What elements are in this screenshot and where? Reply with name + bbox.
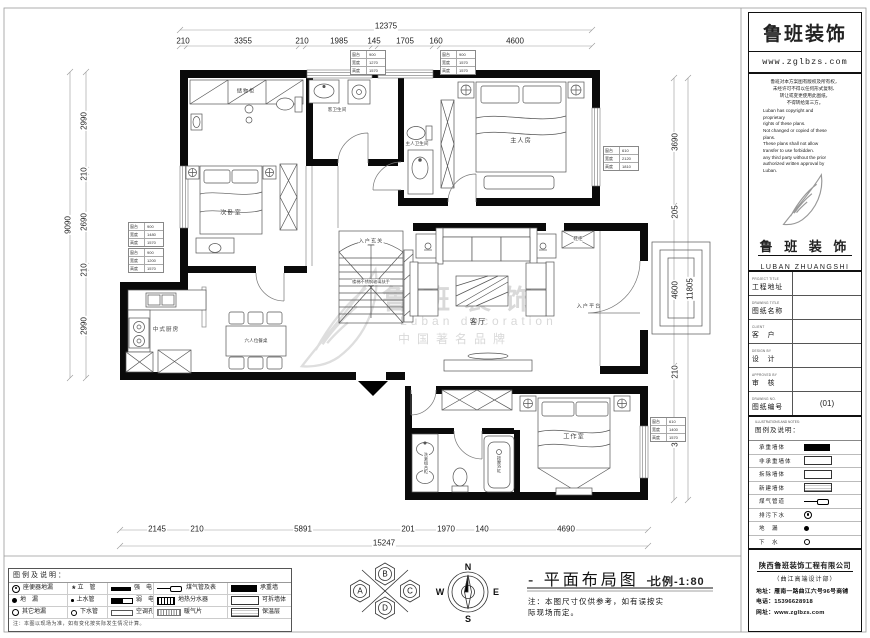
field-value: [793, 320, 861, 343]
field-client: CLIENT客 户: [749, 320, 861, 344]
copyright-en-line: These plans shall not allow: [763, 141, 861, 148]
dim-right-1: 205: [671, 204, 680, 219]
dim-right-3: 210: [671, 364, 680, 379]
copyright-en-line: Not changed or copied of these: [763, 128, 861, 135]
downpipe-icon: [804, 539, 810, 545]
compass-n-label: N: [465, 562, 472, 572]
room-label-guest-bath: 客卫生间: [328, 107, 346, 113]
logo-en: LUBAN ZHUANGSHI: [760, 264, 849, 271]
floor-drain-icon: [804, 526, 809, 531]
dim-bottom-2: 5891: [293, 525, 313, 534]
company-address: 地址：雁南一路曲江六号96号商铺: [756, 587, 861, 597]
window-table-2: 窗台900 宽度1570 高度1570: [440, 50, 476, 75]
room-label-living: 客厅: [470, 317, 486, 327]
gas-pipe-meter-icon: [157, 586, 183, 592]
room-label-foyer: 入户玄关: [359, 238, 384, 245]
panel-legend-row: 地 漏: [749, 522, 861, 536]
field-value: [793, 272, 861, 295]
dim-top-0: 210: [175, 37, 190, 46]
panel-legend-title: ILLUSTRATIONS AND NOTES: 图例及说明：: [749, 417, 861, 441]
room-label-master-bedroom: 主人房: [510, 136, 532, 145]
legend-header: 图例及说明：: [9, 569, 291, 583]
copyright-cn-line: 未经许可不得以任何形式复制、: [749, 85, 861, 92]
copyright-cn-line: 不得转给第三方。: [749, 99, 861, 106]
demolish-wall-icon: [804, 470, 832, 479]
legend-panel: 图例及说明： 座便器地漏 *立 管 强 电 煤气管及表 承重墙 地 漏 上水管 …: [8, 568, 292, 632]
field-approved-by: APPROVED BY审 核: [749, 368, 861, 392]
sewage-drain-icon: [804, 511, 812, 519]
copyright-cn-line: 鲁班对本方案图有版权及所有权，: [749, 78, 861, 85]
dim-top-3: 1985: [329, 37, 349, 46]
legend-label: 承重墙: [260, 583, 278, 594]
dim-bottom-5: 140: [474, 525, 489, 534]
field-project-title: PROJECT TITLE工程地址: [749, 272, 861, 296]
dim-top-7: 4600: [505, 37, 525, 46]
riser-pipe-icon: *: [72, 587, 76, 591]
legend-label: 强 电: [134, 583, 152, 594]
dim-bottom-6: 4690: [556, 525, 576, 534]
dim-right-2: 4600: [671, 280, 680, 300]
water-supply-icon: [71, 599, 74, 602]
legend-label: 暖气片: [184, 607, 202, 618]
logo-cn: 鲁 班 装 饰: [758, 236, 853, 256]
dim-top-4: 145: [366, 37, 381, 46]
room-label-shoe-cabinet: 鞋柜: [573, 236, 582, 242]
panel-legend-row: 拆除墙体: [749, 468, 861, 482]
legend-row: 地 漏 上水管 弱 电 地热分水器 可拆墙体: [9, 595, 291, 607]
copyright-en-line: any third party without the prior: [763, 155, 861, 162]
logo-wordmark: 鲁 班 装 饰 LUBAN ZHUANGSHI: [749, 236, 861, 272]
legend-label: 地 漏: [20, 595, 38, 606]
field-value: [793, 368, 861, 391]
rosette-b-label: B: [382, 570, 387, 579]
title-block-fields: PROJECT TITLE工程地址 DRAWING TITLE图纸名称 CLIE…: [749, 272, 861, 417]
new-wall-icon: [804, 483, 832, 492]
window-table-1: 窗台900 宽度1270 高度1570: [350, 50, 386, 75]
bearing-wall-icon: [804, 444, 830, 451]
insulation-icon: [231, 608, 259, 617]
copyright-en-line: rights of these plans.: [763, 121, 861, 128]
field-drawing-title: DRAWING TITLE图纸名称: [749, 296, 861, 320]
copyright-cn: 鲁班对本方案图有版权及所有权， 未经许可不得以任何形式复制、 转让或变更使用此图…: [749, 74, 861, 108]
panel-legend: ILLUSTRATIONS AND NOTES: 图例及说明： 承重墙体 非承重…: [749, 417, 861, 550]
bearing-wall-icon: [231, 585, 257, 592]
compass-icon: N S E W: [436, 562, 499, 624]
floor-drain-icon: [12, 598, 17, 603]
compass-w-label: W: [436, 587, 445, 597]
field-value: [793, 344, 861, 367]
ac-hole-icon: [111, 610, 133, 616]
dim-top-total: 12375: [374, 22, 398, 31]
plan-drawing: B A C D N S E W: [0, 0, 870, 638]
field-cn: 图纸名称: [752, 305, 792, 315]
drain-pipe-icon: [71, 610, 77, 616]
compass-s-label: S: [465, 614, 471, 624]
room-label-dining: 六人位餐桌: [245, 338, 268, 344]
dim-top-6: 160: [428, 37, 443, 46]
note-line-2: 际现场而定。: [528, 607, 579, 618]
field-cn: 审 核: [752, 377, 792, 387]
window-table-3: 窗台610 宽度2120 高度1810: [603, 146, 639, 171]
dim-top-5: 1705: [395, 37, 415, 46]
legend-label: 立 管: [78, 583, 96, 594]
room-label-kitchen: 中式厨房: [153, 325, 179, 333]
dim-left-4: 2990: [80, 316, 89, 336]
legend-label: 煤气管及表: [186, 583, 216, 594]
manifold-icon: [157, 597, 175, 605]
field-cn: 客 户: [752, 329, 792, 339]
company-phone: 电话：15396628918: [756, 597, 861, 607]
dim-bottom-3: 201: [400, 525, 415, 534]
legend-label: 座便器地漏: [23, 583, 53, 594]
room-label-studio: 工作室: [563, 432, 585, 441]
legend-label: 可拆墙体: [262, 595, 286, 606]
rosette-d-label: D: [382, 604, 388, 613]
legend-label: 下水管: [80, 607, 98, 618]
brand-website: www.zglbzs.com: [749, 52, 861, 74]
copyright-en-line: authorized written approval by: [763, 161, 861, 168]
dim-right-0: 3690: [671, 132, 680, 152]
dim-right-total: 11805: [686, 277, 695, 301]
weak-power-icon: [111, 598, 133, 604]
radiator-icon: [157, 609, 181, 616]
copyright-en-line: Luban has copyright and: [763, 108, 861, 115]
strong-power-icon: [111, 587, 131, 591]
note-line-1: 注：本图尺寸仅供参考，如有误按实: [528, 596, 664, 607]
scale-label: 比例-1:80: [650, 573, 705, 589]
legend-note: 注：本图以现场为准，如有变化按实际发生情况计算。: [9, 619, 291, 627]
room-label-storage: 储物柜: [237, 88, 256, 95]
field-cn: 工程地址: [752, 281, 792, 291]
legend-label: 其它地漏: [22, 607, 46, 618]
field-cn: 图纸编号: [752, 401, 792, 411]
field-design-by: DESIGN BY设 计: [749, 344, 861, 368]
floorplan-sheet: { "sheet": { "drawing_title": "- 平面布局图 -…: [0, 0, 870, 638]
copyright-cn-line: 转让或变更使用此图纸，: [749, 92, 861, 99]
panel-legend-row: 排污下水: [749, 509, 861, 523]
dim-left-total: 9090: [64, 215, 73, 235]
leaf-logo-icon: [749, 170, 861, 236]
copyright-en: Luban has copyright and proprietary righ…: [749, 108, 861, 170]
company-website: 网址：www.zglbzs.com: [756, 608, 861, 618]
legend-row: 座便器地漏 *立 管 强 电 煤气管及表 承重墙: [9, 583, 291, 595]
dim-top-1: 3355: [233, 37, 253, 46]
removable-wall-icon: [231, 596, 259, 605]
room-label-master-bath: 主人卫生间: [406, 141, 429, 147]
direction-rosette: B A C D: [351, 563, 420, 619]
room-label-bathtub: 按摩浴缸: [496, 456, 502, 473]
legend-label: 保温层: [262, 607, 280, 618]
panel-legend-row: 承重墙体: [749, 441, 861, 455]
field-cn: 设 计: [752, 353, 792, 363]
panel-legend-title-cn: 图例及说明：: [755, 424, 861, 434]
panel-legend-row: 非承重墙体: [749, 455, 861, 469]
dim-bottom-total: 15247: [372, 539, 396, 548]
dim-left-0: 2990: [80, 111, 89, 131]
field-value: [793, 296, 861, 319]
other-drain-icon: [12, 609, 19, 616]
copyright-en-line: proprietary: [763, 115, 861, 122]
brand-title: 鲁班装饰: [749, 13, 861, 52]
panel-legend-row: 煤气管道: [749, 495, 861, 509]
copyright-en-line: plans.: [763, 135, 861, 142]
rosette-c-label: C: [407, 587, 413, 596]
copyright-en-line: transfer to use forbidden.: [763, 148, 861, 155]
field-drawing-no: DRAWING NO.图纸编号 (01): [749, 392, 861, 415]
dim-bottom-0: 2145: [147, 525, 167, 534]
legend-label: 弱 电: [136, 595, 153, 606]
company-block: 陕西鲁班装饰工程有限公司 （曲江高端设计部） 地址：雁南一路曲江六号96号商铺 …: [749, 550, 861, 631]
panel-legend-row: 下 水: [749, 536, 861, 549]
compass-e-label: E: [493, 587, 499, 597]
entry-direction-marker: [358, 381, 388, 396]
room-label-entry-platform: 入户平台: [577, 303, 602, 310]
dim-left-2: 2690: [80, 212, 89, 232]
dim-top-2: 210: [294, 37, 309, 46]
dim-bottom-1: 210: [189, 525, 204, 534]
legend-label: 空调孔: [136, 607, 153, 618]
window-table-6: 窗台610 宽度1400 高度1570: [650, 417, 686, 442]
dim-bottom-4: 1970: [436, 525, 456, 534]
legend-label: 地热分水器: [178, 595, 208, 606]
company-department: （曲江高端设计部）: [749, 574, 861, 583]
dim-left-3: 210: [80, 262, 89, 277]
room-label-vanity: 洗漱组合柜: [423, 453, 429, 474]
legend-row: 其它地漏 下水管 空调孔 暖气片 保温层: [9, 607, 291, 619]
rosette-a-label: A: [357, 587, 363, 596]
non-bearing-wall-icon: [804, 456, 832, 465]
window-table-5: 窗台900 宽度1200 高度1570: [128, 248, 164, 273]
drawing-title: - 平面布局图 -: [528, 566, 655, 590]
legend-label: 上水管: [77, 595, 95, 606]
company-name: 陕西鲁班装饰工程有限公司: [757, 561, 853, 572]
room-label-stair-note: 楼梯不锈钢玻璃扶手: [352, 279, 390, 285]
window-table-4: 窗台900 宽度1480 高度1570: [128, 222, 164, 247]
gas-pipe-icon: [804, 498, 830, 504]
title-block-panel: 鲁班装饰 www.zglbzs.com 鲁班对本方案图有版权及所有权， 未经许可…: [748, 12, 862, 632]
dim-left-1: 210: [80, 166, 89, 181]
toilet-drain-icon: [12, 585, 20, 593]
field-value: (01): [793, 392, 861, 415]
room-label-second-bedroom: 次卧室: [220, 208, 242, 217]
panel-legend-row: 新建墙体: [749, 482, 861, 496]
